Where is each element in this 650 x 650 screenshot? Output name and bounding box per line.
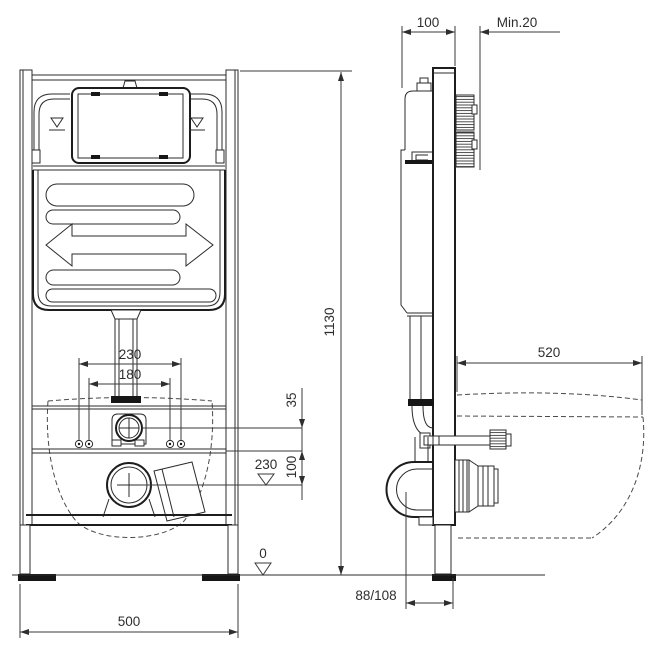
pipe-collar xyxy=(111,396,141,403)
frame-rail-left xyxy=(20,70,32,525)
shoulder-left xyxy=(32,94,70,163)
dim-label-1130: 1130 xyxy=(322,307,337,336)
side-foot xyxy=(432,525,456,581)
dim-label-230-spacing: 230 xyxy=(119,347,142,362)
flush-bend-collar xyxy=(408,399,434,406)
bowl-outline-side xyxy=(457,393,644,538)
dim-label-180-spacing: 180 xyxy=(119,367,142,382)
marker-floor-level-0: 0 xyxy=(255,546,271,575)
installation-frame-drawing: 100 Min.20 1130 230 xyxy=(0,0,650,650)
water-level-icon xyxy=(49,118,65,130)
shoulder-right xyxy=(189,94,224,163)
dim-label-min20: Min.20 xyxy=(497,15,538,30)
flush-bend-housing xyxy=(112,414,302,446)
side-view xyxy=(387,68,644,581)
dim-label-0: 0 xyxy=(259,546,267,561)
cistern-body xyxy=(33,166,225,310)
dim-label-230-height: 230 xyxy=(255,457,278,472)
dim-bowl-depth-520: 520 xyxy=(457,345,642,415)
window-clip xyxy=(159,92,168,96)
access-window xyxy=(72,81,190,163)
technical-drawing-canvas: 100 Min.20 1130 230 xyxy=(0,0,650,650)
top-crossbar xyxy=(32,75,226,80)
leg-left xyxy=(20,525,30,574)
dim-label-88-108: 88/108 xyxy=(355,588,396,603)
dim-label-520: 520 xyxy=(538,345,561,360)
dim-label-500: 500 xyxy=(118,614,141,629)
window-tab xyxy=(123,81,137,88)
water-level-icon xyxy=(189,118,205,130)
dim-frame-height-1130: 1130 xyxy=(240,71,352,575)
fill-valve-knob xyxy=(420,78,428,83)
dim-label-100-top: 100 xyxy=(417,15,440,30)
mounting-nut xyxy=(490,430,506,449)
front-view xyxy=(18,70,302,581)
dim-label-100-vertical: 100 xyxy=(284,456,299,479)
bottom-crossbar xyxy=(26,515,232,525)
fill-valve-cap xyxy=(417,83,431,91)
side-rail xyxy=(433,68,455,525)
dim-label-35: 35 xyxy=(284,392,299,407)
flush-bend xyxy=(412,406,433,437)
outlet-elbow-housing xyxy=(154,462,205,521)
cistern-side-profile xyxy=(401,78,434,437)
embossed-pattern xyxy=(46,184,216,302)
wall-fixing-rods xyxy=(456,95,477,167)
leg-right xyxy=(228,525,238,574)
frame-rail-right xyxy=(226,70,238,525)
dim-frame-width-500: 500 xyxy=(20,584,238,638)
waste-elbow-side xyxy=(387,437,433,525)
window-clip xyxy=(91,92,100,96)
outlet-connector xyxy=(455,460,498,512)
legs-and-feet xyxy=(18,525,240,581)
dim-min-clearance: Min.20 xyxy=(480,15,560,35)
window-clip xyxy=(159,155,168,159)
window-clip xyxy=(91,155,100,159)
level-triangle-icon xyxy=(258,474,274,485)
dim-vertical-chain: 35 100 xyxy=(284,388,305,500)
marker-outlet-height-230: 230 xyxy=(255,457,278,485)
level-triangle-icon xyxy=(255,563,271,575)
